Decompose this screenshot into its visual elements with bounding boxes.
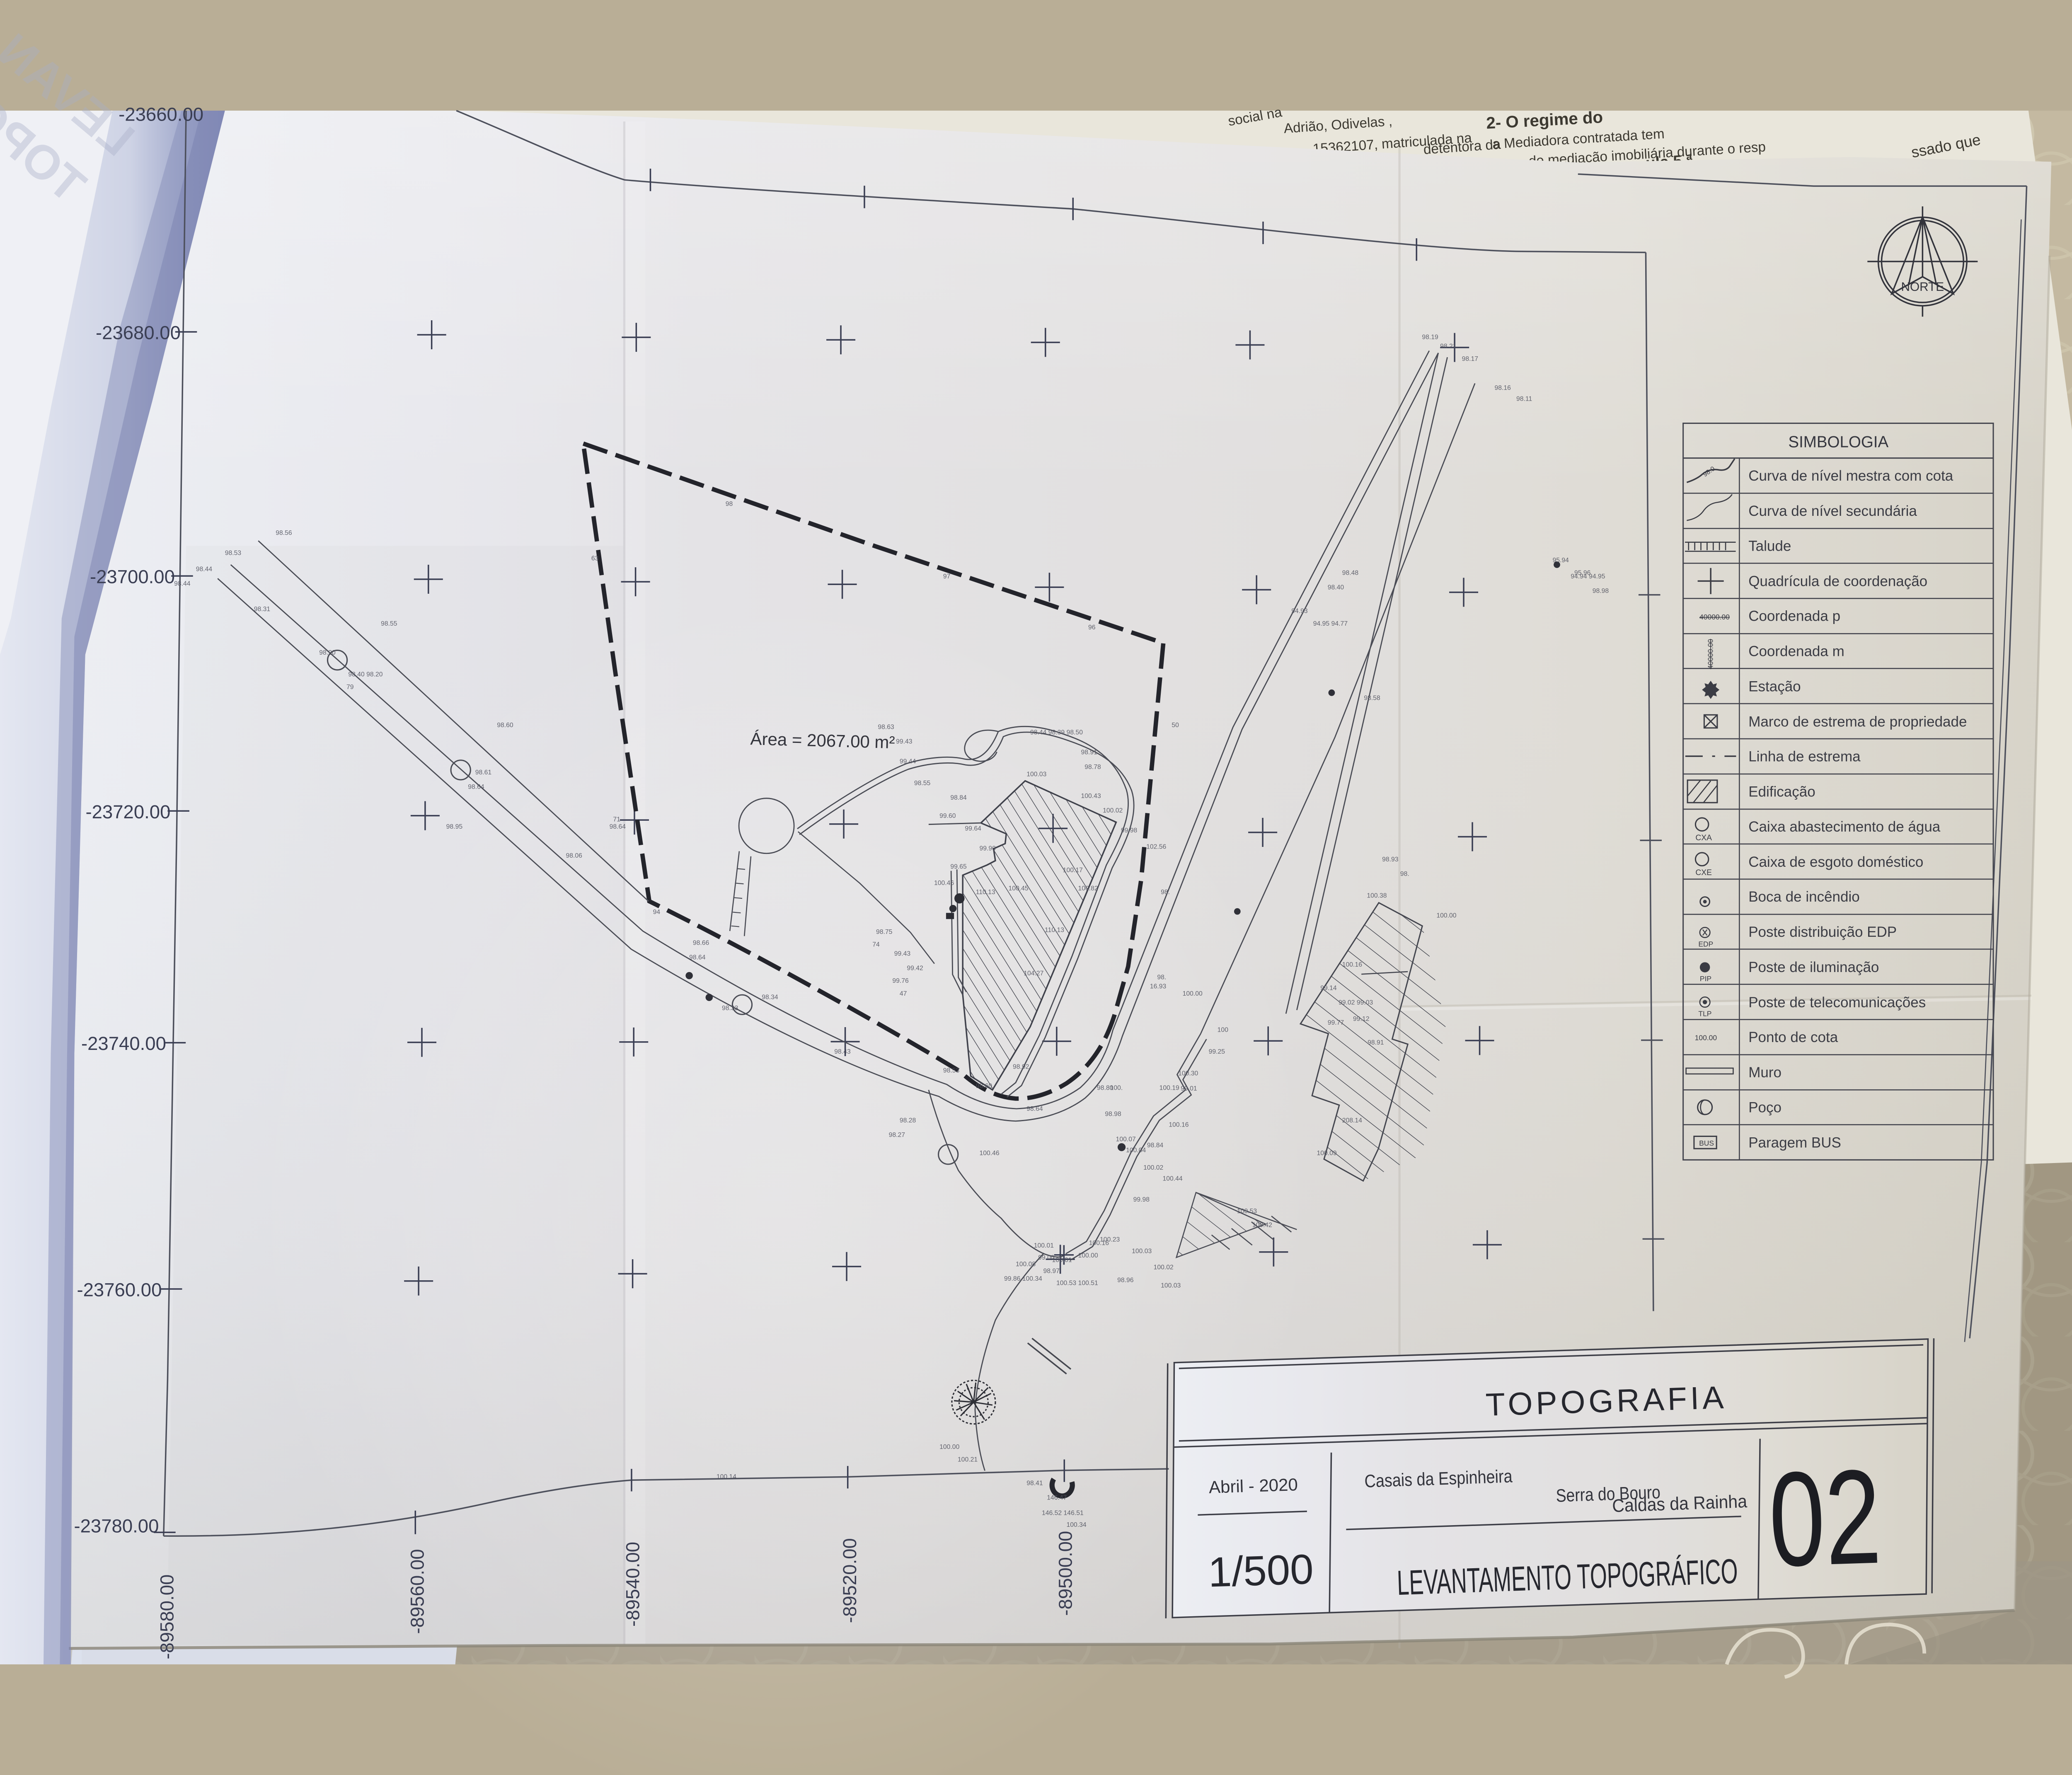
svg-text:100.46: 100.46: [934, 880, 954, 887]
svg-text:100.07: 100.07: [1116, 1136, 1136, 1143]
svg-text:98.34: 98.34: [762, 994, 778, 1001]
svg-text:-23660.00: -23660.00: [119, 104, 203, 125]
svg-text:99.43: 99.43: [896, 738, 913, 745]
svg-text:Caixa abastecimento de água: Caixa abastecimento de água: [1748, 819, 1941, 835]
svg-text:98.: 98.: [1157, 974, 1166, 981]
svg-text:BUS: BUS: [1699, 1139, 1714, 1147]
svg-text:94: 94: [653, 909, 661, 916]
svg-text:99.77: 99.77: [1328, 1019, 1344, 1026]
svg-text:100.34: 100.34: [1067, 1521, 1087, 1528]
svg-text:-89580.00: -89580.00: [156, 1574, 177, 1659]
svg-text:98.91: 98.91: [1368, 1039, 1384, 1046]
svg-text:96: 96: [1088, 624, 1096, 631]
svg-text:Poste de iluminação: Poste de iluminação: [1748, 959, 1879, 975]
svg-text:99.02 99.03: 99.02 99.03: [1339, 999, 1373, 1006]
svg-text:Poço: Poço: [1748, 1100, 1782, 1116]
svg-text:50: 50: [1172, 722, 1179, 729]
svg-text:98.75: 98.75: [876, 929, 893, 936]
svg-text:TOPOGRAFIA: TOPOGRAFIA: [1485, 1380, 1728, 1423]
svg-text:EDP: EDP: [1698, 940, 1713, 948]
svg-text:Poste distribuição EDP: Poste distribuição EDP: [1748, 924, 1897, 940]
svg-text:100.30: 100.30: [1178, 1070, 1198, 1077]
svg-text:-89540.00: -89540.00: [622, 1542, 643, 1627]
svg-text:98.06: 98.06: [566, 852, 583, 859]
svg-text:98.55: 98.55: [381, 620, 397, 627]
svg-text:PIP: PIP: [1700, 975, 1711, 983]
svg-text:40000.00: 40000.00: [1699, 613, 1730, 621]
svg-text:-89500.00: -89500.00: [1055, 1531, 1076, 1616]
svg-text:71: 71: [613, 816, 620, 823]
svg-text:100.03: 100.03: [1132, 1248, 1152, 1255]
svg-text:Área = 2067.00 m²: Área = 2067.00 m²: [750, 729, 895, 752]
svg-text:98.84: 98.84: [950, 794, 967, 801]
svg-text:100.04: 100.04: [1126, 1147, 1146, 1154]
svg-text:98.64: 98.64: [1026, 1105, 1043, 1112]
svg-text:98.61: 98.61: [475, 769, 491, 776]
svg-text:100.53 100.51: 100.53 100.51: [1056, 1279, 1098, 1287]
svg-text:-23760.00: -23760.00: [77, 1279, 162, 1301]
svg-text:-89560.00: -89560.00: [407, 1549, 428, 1634]
svg-text:-23780.00: -23780.00: [74, 1515, 159, 1536]
svg-text:100.02: 100.02: [1154, 1264, 1174, 1271]
svg-text:98.58: 98.58: [1364, 694, 1380, 701]
svg-text:94.95 94.77: 94.95 94.77: [1313, 620, 1348, 627]
svg-text:98.27: 98.27: [889, 1132, 905, 1139]
svg-text:100.17: 100.17: [1063, 867, 1083, 874]
svg-text:99.12: 99.12: [1353, 1016, 1369, 1023]
svg-text:98.84: 98.84: [1147, 1142, 1164, 1149]
svg-text:Abril - 2020: Abril - 2020: [1208, 1475, 1298, 1497]
svg-text:100.03: 100.03: [1026, 771, 1046, 778]
svg-text:-23700.00: -23700.00: [90, 566, 175, 588]
svg-text:94.93: 94.93: [1291, 607, 1308, 614]
svg-text:Estação: Estação: [1748, 678, 1801, 694]
svg-text:95.96: 95.96: [1574, 569, 1591, 576]
svg-text:100.: 100.: [1110, 1084, 1123, 1091]
svg-text:Marco de estrema de propriedad: Marco de estrema de propriedade: [1748, 713, 1967, 730]
svg-text:63: 63: [591, 555, 599, 562]
svg-text:100.45: 100.45: [1008, 885, 1028, 892]
svg-text:Edificação: Edificação: [1748, 784, 1815, 800]
svg-text:Quadrícula de coordenação: Quadrícula de coordenação: [1748, 573, 1927, 590]
svg-text:99.64: 99.64: [965, 825, 981, 832]
svg-text:Linha de estrema: Linha de estrema: [1748, 748, 1861, 764]
svg-text:98.96: 98.96: [1117, 1277, 1134, 1284]
svg-text:98.98: 98.98: [1105, 1110, 1121, 1117]
svg-text:104.27: 104.27: [1024, 970, 1043, 977]
svg-text:98.56: 98.56: [276, 530, 292, 537]
svg-text:99.14: 99.14: [1320, 985, 1337, 992]
svg-text:100.21: 100.21: [958, 1456, 978, 1463]
svg-text:16.93: 16.93: [1150, 983, 1167, 990]
svg-text:Boca de incêndio: Boca de incêndio: [1748, 889, 1860, 905]
svg-text:99.25: 99.25: [1209, 1048, 1225, 1055]
svg-text:100.01: 100.01: [1034, 1242, 1054, 1249]
svg-text:100.03: 100.03: [1161, 1282, 1181, 1289]
svg-text:98.64: 98.64: [468, 784, 484, 791]
svg-text:98.: 98.: [1161, 889, 1170, 896]
svg-text:98.97: 98.97: [1043, 1267, 1060, 1274]
svg-text:99.00: 99.00: [1038, 1254, 1055, 1261]
svg-text:98.91: 98.91: [1081, 749, 1097, 756]
svg-text:100.46: 100.46: [979, 1150, 999, 1157]
svg-text:100.16: 100.16: [1342, 961, 1362, 968]
svg-text:102.56: 102.56: [1146, 843, 1166, 850]
svg-text:98.98: 98.98: [1593, 588, 1609, 595]
svg-text:98.43: 98.43: [834, 1048, 851, 1055]
svg-text:98.78: 98.78: [1084, 764, 1101, 771]
svg-text:NORTE: NORTE: [1901, 280, 1944, 294]
svg-text:100.09: 100.09: [1317, 1150, 1337, 1157]
svg-text:98.44 98.39 98.50: 98.44 98.39 98.50: [1030, 729, 1083, 736]
svg-text:97: 97: [943, 573, 951, 580]
svg-text:CXE: CXE: [1695, 868, 1712, 877]
svg-text:Paragem BUS: Paragem BUS: [1748, 1135, 1841, 1151]
svg-text:TLP: TLP: [1698, 1010, 1711, 1018]
svg-text:98.31: 98.31: [254, 606, 270, 613]
svg-text:98.55: 98.55: [914, 780, 931, 787]
svg-text:40000.00: 40000.00: [1706, 639, 1714, 669]
svg-text:98.60: 98.60: [497, 722, 513, 729]
svg-text:02: 02: [1767, 1441, 1883, 1594]
svg-text:99.86 100.34: 99.86 100.34: [1004, 1275, 1042, 1282]
svg-text:100.08: 100.08: [1016, 1261, 1036, 1268]
svg-text:98.21: 98.21: [1440, 343, 1456, 350]
svg-text:98.20: 98.20: [319, 649, 336, 656]
svg-text:99.98: 99.98: [1133, 1196, 1150, 1203]
svg-text:-23680.00: -23680.00: [96, 322, 181, 343]
svg-text:98.92: 98.92: [1013, 1064, 1029, 1071]
svg-text:Caixa de esgoto doméstico: Caixa de esgoto doméstico: [1748, 854, 1923, 870]
svg-text:100.00: 100.00: [1695, 1034, 1717, 1042]
svg-text:98.53: 98.53: [943, 1067, 960, 1074]
svg-text:208.14: 208.14: [1342, 1117, 1362, 1124]
svg-text:100.00: 100.00: [1183, 990, 1203, 997]
svg-text:98.60: 98.60: [976, 1083, 992, 1090]
svg-text:110.13: 110.13: [976, 889, 995, 896]
svg-text:100.38: 100.38: [1367, 892, 1387, 900]
svg-text:Talude: Talude: [1748, 538, 1791, 554]
svg-text:1/500: 1/500: [1208, 1545, 1314, 1596]
svg-text:95.94: 95.94: [1552, 557, 1569, 564]
svg-text:98.17: 98.17: [1462, 355, 1478, 363]
svg-text:98: 98: [726, 501, 733, 508]
svg-text:99.42: 99.42: [907, 965, 923, 972]
svg-text:99.60: 99.60: [939, 813, 956, 820]
svg-text:100.44: 100.44: [1162, 1175, 1182, 1182]
svg-text:100.43: 100.43: [1081, 793, 1101, 800]
svg-text:98.95: 98.95: [446, 823, 463, 830]
svg-text:100.42: 100.42: [1252, 1221, 1272, 1228]
svg-text:98.19: 98.19: [1422, 334, 1438, 341]
svg-text:Ponto de cota: Ponto de cota: [1748, 1029, 1838, 1045]
svg-text:98.48: 98.48: [1342, 569, 1359, 576]
svg-text:100.82: 100.82: [1078, 885, 1098, 892]
svg-text:99.44: 99.44: [900, 758, 916, 765]
svg-text:98.: 98.: [1400, 871, 1409, 878]
svg-text:100.01: 100.01: [1052, 1257, 1072, 1264]
svg-text:98.33: 98.33: [722, 1005, 738, 1012]
svg-text:100.53: 100.53: [1237, 1208, 1257, 1215]
svg-text:99.90: 99.90: [979, 845, 996, 852]
svg-text:98.44: 98.44: [196, 566, 213, 573]
svg-text:98.28: 98.28: [900, 1117, 916, 1124]
svg-text:100.00: 100.00: [1078, 1252, 1098, 1259]
svg-text:Muro: Muro: [1748, 1064, 1782, 1081]
svg-text:-23720.00: -23720.00: [85, 801, 170, 822]
svg-text:Curva de nível mestra com cota: Curva de nível mestra com cota: [1748, 468, 1953, 484]
svg-text:100.16: 100.16: [1089, 1240, 1109, 1247]
svg-text:Coordenada p: Coordenada p: [1748, 608, 1840, 624]
svg-text:100: 100: [1218, 1026, 1229, 1033]
svg-text:98.41: 98.41: [1026, 1480, 1043, 1487]
svg-text:SIMBOLOGIA: SIMBOLOGIA: [1788, 433, 1888, 451]
svg-text:100.02: 100.02: [1103, 807, 1123, 814]
svg-text:146.47: 146.47: [1047, 1494, 1067, 1502]
svg-text:98.16: 98.16: [1494, 385, 1511, 392]
svg-text:98.64: 98.64: [610, 823, 626, 830]
svg-text:98.53: 98.53: [225, 549, 242, 556]
svg-text:-23740.00: -23740.00: [81, 1033, 166, 1054]
svg-text:100.14: 100.14: [716, 1473, 736, 1480]
svg-text:98.40 98.20: 98.40 98.20: [348, 671, 382, 678]
svg-text:98.11: 98.11: [1516, 395, 1532, 402]
svg-text:99.43: 99.43: [894, 950, 911, 958]
svg-text:99.01: 99.01: [1181, 1085, 1197, 1092]
svg-text:98.40: 98.40: [1328, 584, 1344, 591]
svg-text:100.00: 100.00: [1436, 912, 1456, 919]
svg-text:100.16: 100.16: [1169, 1122, 1188, 1129]
svg-text:-89520.00: -89520.00: [839, 1538, 860, 1623]
svg-text:47: 47: [900, 990, 907, 997]
svg-text:98.66: 98.66: [693, 939, 709, 946]
svg-text:98.64: 98.64: [689, 954, 706, 961]
svg-text:98.44: 98.44: [174, 580, 191, 588]
svg-text:100.02: 100.02: [1143, 1164, 1163, 1171]
svg-text:100.19: 100.19: [1159, 1084, 1179, 1091]
svg-text:79: 79: [346, 684, 354, 691]
svg-text:100.00: 100.00: [939, 1444, 959, 1451]
svg-text:98.93: 98.93: [1382, 856, 1399, 863]
svg-text:74: 74: [872, 941, 880, 948]
svg-text:146.52 146.51: 146.52 146.51: [1042, 1509, 1084, 1516]
svg-text:Poste de telecomunicações: Poste de telecomunicações: [1748, 994, 1926, 1011]
svg-text:Curva de nível secundária: Curva de nível secundária: [1748, 503, 1917, 519]
svg-text:98.63: 98.63: [878, 723, 894, 730]
svg-text:Coordenada m: Coordenada m: [1748, 643, 1844, 660]
svg-text:99.65: 99.65: [950, 863, 967, 870]
svg-text:99.76: 99.76: [892, 977, 909, 984]
svg-text:99.98: 99.98: [1121, 827, 1138, 834]
svg-text:110.13: 110.13: [1045, 927, 1064, 934]
svg-text:CXA: CXA: [1695, 834, 1712, 842]
